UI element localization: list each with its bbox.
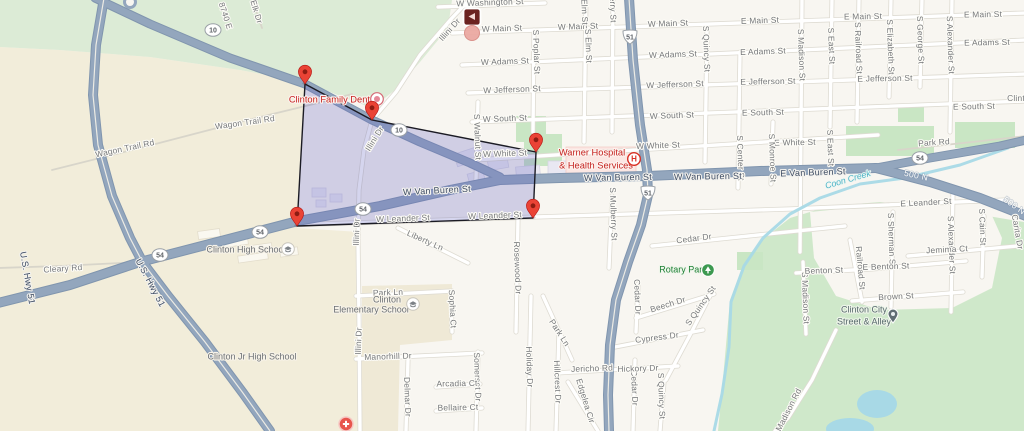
street-label: E Jefferson St: [740, 76, 796, 87]
street-label: Illini Dr: [353, 327, 364, 355]
street-label: Cedar Dr: [629, 370, 640, 406]
street-label: Arcadia Ct: [436, 378, 478, 389]
street-label: S Walnut St: [472, 114, 484, 161]
street-label: S Quincy St: [656, 373, 668, 420]
route-shield-54: 54: [252, 226, 268, 239]
street-label: W Leander St: [468, 209, 522, 221]
street-label: Sophia Ct: [447, 289, 459, 329]
street-label: Manorhill Dr: [364, 350, 412, 362]
street-label: E Benton St: [862, 260, 910, 272]
street-label: W White St: [636, 139, 681, 151]
red-pin-dot: [295, 211, 300, 216]
street-label: S Sherman St: [886, 213, 898, 268]
pale-circle-icon[interactable]: [465, 26, 480, 41]
route-shield-54: 54: [152, 249, 168, 262]
street-label: S Elizabeth St: [885, 19, 897, 75]
area-green-corner: [898, 106, 924, 122]
street-label: E Jefferson St: [857, 73, 913, 84]
street-label: S George St: [915, 16, 927, 65]
poi-rotary-park-icon[interactable]: [702, 264, 715, 277]
hospital-h-icon: H: [631, 155, 637, 164]
street-label: W White St: [483, 147, 528, 159]
shield-number: 54: [156, 252, 164, 259]
street-label: Benton St: [805, 265, 844, 276]
street-label: S Madison St: [800, 272, 812, 325]
street-label: S Railroad St: [853, 22, 865, 75]
roundabout: [125, 0, 136, 8]
red-pin-dot: [531, 203, 536, 208]
red-pin-dot: [370, 105, 375, 110]
street-label: Jericho Rd: [571, 362, 613, 373]
poi-clinton-elementary-school-icon[interactable]: [407, 298, 420, 311]
poi-clinton-elementary-school-label: Clinton: [373, 294, 401, 304]
street-label: W South St: [650, 109, 695, 121]
street-label: E Main St: [964, 9, 1003, 20]
street-label: W South St: [483, 112, 528, 124]
shield-number: 51: [626, 34, 634, 41]
street-label: W Jefferson St: [646, 78, 704, 90]
poi-clinton-jr-high-school-label: Clinton Jr High School: [207, 351, 296, 361]
street-label: S Poplar St: [531, 30, 543, 75]
street-label: S Mulberry St: [608, 187, 620, 241]
red-pin-dot: [534, 137, 539, 142]
street-label: Delmar Dr: [402, 377, 413, 417]
poi-warner-hospital-icon[interactable]: H: [628, 153, 641, 166]
street-label: S Madison St: [796, 29, 808, 82]
street-label: W Van Buren St: [584, 172, 652, 183]
route-shield-54: 54: [912, 152, 928, 165]
poi-clinton-jr-high-school[interactable]: Clinton Jr High School: [207, 351, 296, 361]
street-label: S Cain St: [977, 208, 988, 246]
street-label: S East St: [825, 129, 836, 167]
street-label: E Adams St: [964, 37, 1010, 48]
street-label: W Adams St: [481, 55, 530, 67]
street-label: S Alexander St: [945, 16, 957, 75]
street-label: Illini Dr: [351, 218, 362, 246]
shield-number: 54: [916, 155, 924, 162]
street-label: W Leander St: [376, 212, 430, 224]
shield-number: 10: [209, 27, 217, 34]
street-label: S Elm St: [583, 29, 594, 64]
street-label: W Van Buren St: [674, 171, 742, 182]
street-label: Rosewood Dr: [512, 241, 524, 294]
cross-circle-icon[interactable]: [339, 417, 353, 431]
poi-clinton-city-street-alley-label: Street & Alley: [837, 316, 892, 326]
poi-clinton-city-street-alley-label: Clinton City: [841, 304, 888, 314]
flag-square-icon[interactable]: [464, 9, 481, 26]
street-label: Cedar Dr: [632, 279, 643, 315]
street-label: Elm St: [579, 0, 590, 26]
shield-number: 51: [644, 190, 652, 197]
shield-number: 10: [395, 127, 403, 134]
map-viewport[interactable]: W Washington StW Main StW Main StW Main …: [0, 0, 1024, 431]
street-label: Bellaire Ct: [437, 402, 478, 413]
red-pin-dot: [303, 69, 308, 74]
route-shield-54: 54: [355, 203, 371, 216]
route-shield-10: 10: [391, 124, 407, 137]
poi-clinton-high-school-label: Clinton High School: [206, 244, 285, 254]
street-label: S East St: [826, 27, 837, 65]
shield-number: 54: [359, 206, 367, 213]
street-label: S Monroe St: [767, 133, 779, 183]
poi-clinton-high-school-icon[interactable]: [282, 243, 295, 256]
street-label: W Main St: [648, 18, 689, 29]
street-label: Brown St: [878, 290, 915, 302]
poi-rotary-park-label: Rotary Park: [659, 264, 707, 274]
pond-1: [857, 390, 897, 418]
street-label: Hickory Dr: [617, 363, 658, 374]
street-label: E Main St: [741, 15, 780, 26]
poi-clinton-elementary-school-label: Elementary School: [333, 304, 409, 314]
poi-warner-hospital-label: Warner Hospital: [559, 147, 625, 157]
street-label: E Adams St: [740, 45, 787, 57]
shield-number: 54: [256, 229, 264, 236]
street-label: Hillcrest Dr: [552, 360, 564, 404]
street-label: W Jefferson St: [483, 83, 541, 95]
street-label: W Main St: [482, 23, 523, 34]
street-label: E South St: [742, 107, 785, 118]
street-label: S Quincy St: [701, 26, 713, 73]
poi-clinton-family-dental-label: Clinton Family Dental: [289, 94, 377, 104]
street-label: Clint: [1007, 93, 1024, 103]
street-label: Holiday Dr: [524, 346, 535, 387]
street-label: W Adams St: [649, 48, 698, 60]
map-canvas[interactable]: W Washington StW Main StW Main StW Main …: [0, 0, 1024, 431]
street-label: E South St: [953, 101, 996, 112]
poi-clinton-high-school[interactable]: Clinton High School: [206, 243, 294, 256]
street-label: E White St: [774, 137, 816, 148]
street-label: S Mulberry St: [607, 0, 619, 23]
poi-warner-hospital-label: & Health Services: [559, 160, 633, 170]
street-label: E Main St: [844, 11, 883, 22]
route-shield-10: 10: [205, 24, 221, 37]
tooth-icon: [374, 96, 380, 102]
